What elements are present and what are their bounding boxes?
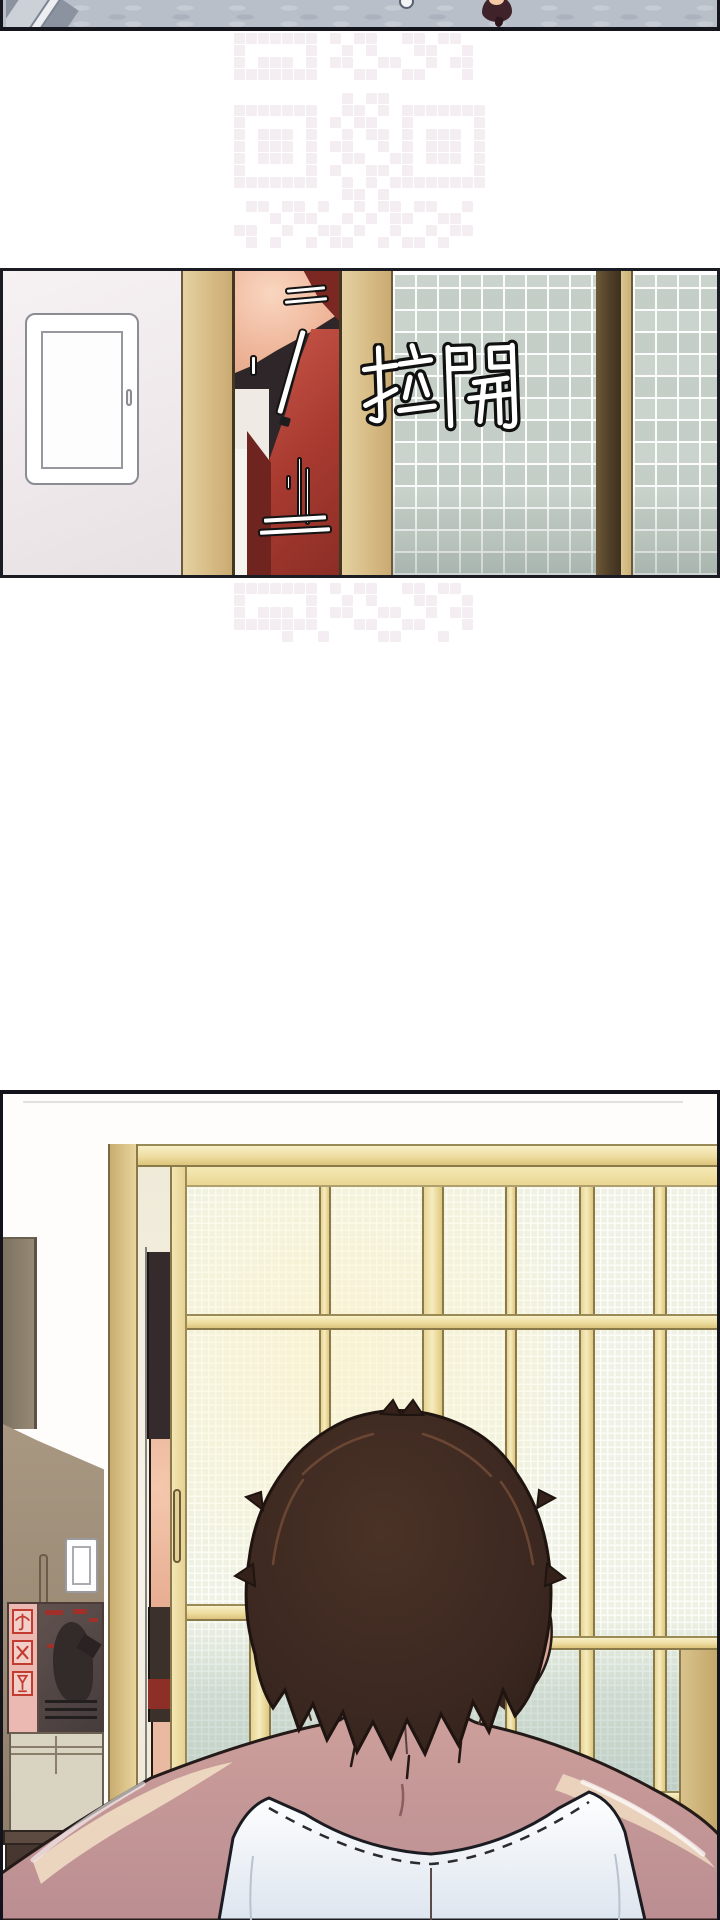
- watermark-cell: [402, 105, 413, 116]
- watermark-cell: [270, 177, 281, 188]
- watermark-cell: [258, 607, 269, 618]
- wall-cabinet: [25, 313, 139, 485]
- watermark-cell: [438, 237, 449, 248]
- watermark-cell: [438, 153, 449, 164]
- watermark-cell: [234, 165, 245, 176]
- watermark-cell: [306, 117, 317, 128]
- man-hair: [246, 1410, 551, 1758]
- watermark-cell: [450, 141, 461, 152]
- watermark-cell: [234, 33, 245, 44]
- watermark-cell: [402, 117, 413, 128]
- watermark-cell: [414, 45, 425, 56]
- watermark-cell: [378, 237, 389, 248]
- watermark-cell: [438, 105, 449, 116]
- watermark-cell: [330, 33, 341, 44]
- watermark-cell: [438, 33, 449, 44]
- watermark-cell: [426, 153, 437, 164]
- watermark-cell: [462, 69, 473, 80]
- shoji-shade: [393, 485, 596, 575]
- watermark-cell: [438, 129, 449, 140]
- watermark-cell: [270, 33, 281, 44]
- watermark-cell: [270, 153, 281, 164]
- watermark-cell: [258, 33, 269, 44]
- watermark-cell: [294, 105, 305, 116]
- watermark-cell: [426, 177, 437, 188]
- watermark-cell: [258, 105, 269, 116]
- watermark-cell: [390, 213, 401, 224]
- watermark-cell: [354, 619, 365, 630]
- watermark-cell: [426, 105, 437, 116]
- panel-hallway-floor: [0, 0, 720, 31]
- panel-man-facing-doors: [0, 1090, 720, 1920]
- watermark-cell: [378, 105, 389, 116]
- watermark-cell: [474, 141, 485, 152]
- cabinet-handle: [126, 389, 132, 406]
- watermark-cell: [366, 129, 377, 140]
- watermark-cell: [282, 129, 293, 140]
- watermark-cell: [354, 117, 365, 128]
- watermark-cell: [426, 57, 437, 68]
- watermark-cell: [318, 201, 329, 212]
- watermark-cell: [402, 583, 413, 594]
- watermark-cell: [294, 33, 305, 44]
- watermark-cell: [306, 237, 317, 248]
- watermark-cell: [270, 141, 281, 152]
- watermark-cell: [378, 141, 389, 152]
- watermark-cell: [390, 225, 401, 236]
- watermark-cell: [258, 619, 269, 630]
- watermark-cell: [390, 201, 401, 212]
- watermark-cell: [462, 201, 473, 212]
- watermark-cell: [258, 69, 269, 80]
- panel-doorway-peek: 拉開: [0, 268, 720, 578]
- watermark-cell: [282, 607, 293, 618]
- watermark-cell: [438, 631, 449, 642]
- watermark-cell: [282, 631, 293, 642]
- watermark-cell: [234, 69, 245, 80]
- watermark-cell: [306, 105, 317, 116]
- watermark-cell: [414, 595, 425, 606]
- watermark-cell: [246, 619, 257, 630]
- watermark-cell: [402, 165, 413, 176]
- watermark-cell: [342, 45, 353, 56]
- webtoon-page: 拉開: [0, 0, 720, 1920]
- door-opening: [235, 271, 339, 575]
- watermark-cell: [306, 213, 317, 224]
- watermark-cell: [330, 165, 341, 176]
- watermark-cell: [390, 57, 401, 68]
- watermark-cell: [234, 177, 245, 188]
- watermark-cell: [366, 583, 377, 594]
- watermark-cell: [462, 225, 473, 236]
- watermark-cell: [462, 57, 473, 68]
- watermark-cell: [330, 607, 341, 618]
- watermark-cell: [402, 213, 413, 224]
- watermark-cell: [282, 141, 293, 152]
- door-frame-post: [181, 271, 235, 575]
- watermark-cell: [414, 105, 425, 116]
- watermark-cell: [294, 69, 305, 80]
- watermark-cell: [402, 69, 413, 80]
- watermark-cell: [390, 631, 401, 642]
- watermark-cell: [462, 607, 473, 618]
- watermark-cell: [306, 69, 317, 80]
- watermark-cell: [474, 129, 485, 140]
- watermark-cell: [270, 583, 281, 594]
- watermark-cell: [282, 177, 293, 188]
- watermark-cell: [426, 607, 437, 618]
- watermark-cell: [426, 201, 437, 212]
- watermark-cell: [294, 177, 305, 188]
- watermark-cell: [426, 225, 437, 236]
- watermark-cell: [378, 93, 389, 104]
- watermark-cell: [294, 583, 305, 594]
- watermark-cell: [330, 225, 341, 236]
- watermark-cell: [438, 583, 449, 594]
- watermark-cell: [378, 631, 389, 642]
- watermark-cell: [474, 177, 485, 188]
- watermark-cell: [330, 117, 341, 128]
- watermark-cell: [234, 607, 245, 618]
- watermark-cell: [438, 213, 449, 224]
- watermark-cell: [366, 93, 377, 104]
- watermark-cell: [450, 607, 461, 618]
- watermark-cell: [378, 57, 389, 68]
- watermark-cell: [258, 141, 269, 152]
- watermark-cell: [354, 583, 365, 594]
- watermark-cell: [342, 595, 353, 606]
- watermark-cell: [270, 129, 281, 140]
- watermark-cell: [282, 583, 293, 594]
- watermark-cell: [450, 177, 461, 188]
- watermark-cell: [258, 201, 269, 212]
- watermark-cell: [282, 57, 293, 68]
- watermark-cell: [330, 141, 341, 152]
- watermark-cell: [426, 129, 437, 140]
- watermark-cell: [330, 237, 341, 248]
- watermark-cell: [414, 69, 425, 80]
- watermark-cell: [282, 619, 293, 630]
- watermark-cell: [234, 595, 245, 606]
- watermark-cell: [270, 619, 281, 630]
- watermark-cell: [342, 105, 353, 116]
- watermark-cell: [378, 607, 389, 618]
- watermark-cell: [426, 141, 437, 152]
- dark-red-shoe: [480, 0, 518, 25]
- watermark-cell: [234, 45, 245, 56]
- watermark-cell: [282, 69, 293, 80]
- watermark-cell: [270, 57, 281, 68]
- watermark-cell: [390, 177, 401, 188]
- dark-wood-divider: [596, 271, 621, 575]
- watermark-cell: [246, 105, 257, 116]
- watermark-cell: [378, 201, 389, 212]
- watermark-cell: [258, 583, 269, 594]
- watermark-cell: [366, 165, 377, 176]
- watermark-cell: [366, 69, 377, 80]
- watermark-cell: [450, 583, 461, 594]
- watermark-cell: [438, 141, 449, 152]
- watermark-cell: [270, 105, 281, 116]
- watermark-cell: [270, 213, 281, 224]
- watermark-cell: [342, 189, 353, 200]
- watermark-cell: [414, 583, 425, 594]
- watermark-cell: [306, 57, 317, 68]
- watermark-cell: [258, 153, 269, 164]
- watermark-cell: [342, 153, 353, 164]
- watermark-cell: [462, 595, 473, 606]
- man-back-view: [3, 1094, 717, 1920]
- watermark-cell: [474, 165, 485, 176]
- watermark-cell: [246, 583, 257, 594]
- watermark-cell: [378, 189, 389, 200]
- watermark-cell: [450, 225, 461, 236]
- watermark-cell: [366, 33, 377, 44]
- watermark-cell: [234, 619, 245, 630]
- watermark-cell: [450, 33, 461, 44]
- watermark-cell: [438, 177, 449, 188]
- watermark-cell: [258, 177, 269, 188]
- watermark-cell: [462, 177, 473, 188]
- watermark-cell: [474, 105, 485, 116]
- watermark-cell: [366, 117, 377, 128]
- watermark-cell: [246, 237, 257, 248]
- watermark-cell: [234, 105, 245, 116]
- watermark-cell: [450, 129, 461, 140]
- sfx-strokes: [359, 338, 522, 440]
- watermark-cell: [246, 201, 257, 212]
- watermark-cell: [318, 225, 329, 236]
- watermark-cell: [234, 129, 245, 140]
- watermark-cell: [294, 619, 305, 630]
- watermark-cell: [246, 225, 257, 236]
- watermark-cell: [366, 619, 377, 630]
- watermark-cell: [306, 619, 317, 630]
- watermark-cell: [462, 45, 473, 56]
- watermark-cell: [426, 45, 437, 56]
- watermark-cell: [306, 33, 317, 44]
- qr-watermark-top: [234, 33, 487, 250]
- watermark-cell: [390, 607, 401, 618]
- watermark-cell: [306, 129, 317, 140]
- watermark-cell: [234, 141, 245, 152]
- stitch-mark: [250, 355, 257, 376]
- watermark-cell: [354, 105, 365, 116]
- watermark-cell: [270, 607, 281, 618]
- shoji-shade: [633, 485, 717, 575]
- watermark-cell: [354, 153, 365, 164]
- watermark-cell: [414, 177, 425, 188]
- watermark-cell: [270, 69, 281, 80]
- watermark-cell: [270, 237, 281, 248]
- watermark-cell: [402, 141, 413, 152]
- watermark-cell: [342, 607, 353, 618]
- watermark-cell: [450, 57, 461, 68]
- watermark-cell: [282, 105, 293, 116]
- watermark-cell: [462, 619, 473, 630]
- watermark-cell: [246, 177, 257, 188]
- watermark-cell: [342, 57, 353, 68]
- watermark-cell: [354, 225, 365, 236]
- watermark-cell: [306, 607, 317, 618]
- watermark-cell: [378, 129, 389, 140]
- watermark-cell: [354, 69, 365, 80]
- watermark-cell: [330, 583, 341, 594]
- watermark-cell: [246, 69, 257, 80]
- watermark-cell: [282, 153, 293, 164]
- watermark-cell: [414, 619, 425, 630]
- tan-frame-strip: [621, 271, 633, 575]
- watermark-cell: [462, 105, 473, 116]
- watermark-cell: [366, 45, 377, 56]
- watermark-cell: [354, 201, 365, 212]
- watermark-cell: [342, 129, 353, 140]
- watermark-cell: [306, 141, 317, 152]
- watermark-cell: [402, 33, 413, 44]
- watermark-cell: [306, 595, 317, 606]
- watermark-cell: [426, 595, 437, 606]
- watermark-cell: [414, 237, 425, 248]
- watermark-cell: [390, 153, 401, 164]
- staircase-shape: [6, 0, 98, 27]
- watermark-cell: [246, 33, 257, 44]
- watermark-cell: [318, 631, 329, 642]
- watermark-cell: [402, 237, 413, 248]
- watermark-cell: [306, 45, 317, 56]
- watermark-cell: [366, 213, 377, 224]
- watermark-cell: [474, 117, 485, 128]
- watermark-cell: [234, 57, 245, 68]
- watermark-cell: [294, 201, 305, 212]
- watermark-cell: [234, 117, 245, 128]
- stitch-mark: [297, 457, 302, 521]
- watermark-cell: [258, 129, 269, 140]
- watermark-cell: [306, 153, 317, 164]
- watermark-cell: [366, 177, 377, 188]
- watermark-cell: [354, 189, 365, 200]
- shoji-screen-right: [633, 275, 717, 575]
- floor-circle: [399, 0, 414, 9]
- watermark-cell: [282, 225, 293, 236]
- watermark-cell: [342, 237, 353, 248]
- sfx-pull-open: 拉開: [359, 338, 522, 440]
- watermark-cell: [402, 619, 413, 630]
- watermark-cell: [414, 201, 425, 212]
- watermark-cell: [258, 57, 269, 68]
- stitch-mark: [286, 475, 291, 490]
- watermark-cell: [234, 583, 245, 594]
- watermark-cell: [402, 177, 413, 188]
- watermark-cell: [402, 129, 413, 140]
- watermark-cell: [366, 595, 377, 606]
- watermark-cell: [306, 177, 317, 188]
- watermark-cell: [450, 213, 461, 224]
- watermark-cell: [414, 33, 425, 44]
- watermark-cell: [354, 33, 365, 44]
- watermark-cell: [342, 93, 353, 104]
- watermark-cell: [330, 57, 341, 68]
- watermark-cell: [402, 153, 413, 164]
- watermark-cell: [342, 141, 353, 152]
- watermark-cell: [342, 213, 353, 224]
- watermark-cell: [378, 165, 389, 176]
- watermark-cell: [306, 165, 317, 176]
- watermark-cell: [234, 153, 245, 164]
- watermark-cell: [474, 153, 485, 164]
- watermark-cell: [306, 583, 317, 594]
- watermark-cell: [450, 153, 461, 164]
- watermark-cell: [282, 201, 293, 212]
- cabinet-door: [41, 331, 123, 469]
- watermark-cell: [282, 33, 293, 44]
- shoe-tip: [494, 16, 504, 27]
- watermark-cell: [450, 105, 461, 116]
- watermark-cell: [342, 177, 353, 188]
- watermark-cell: [234, 225, 245, 236]
- qr-watermark-bottom: [234, 583, 487, 644]
- watermark-cell: [294, 213, 305, 224]
